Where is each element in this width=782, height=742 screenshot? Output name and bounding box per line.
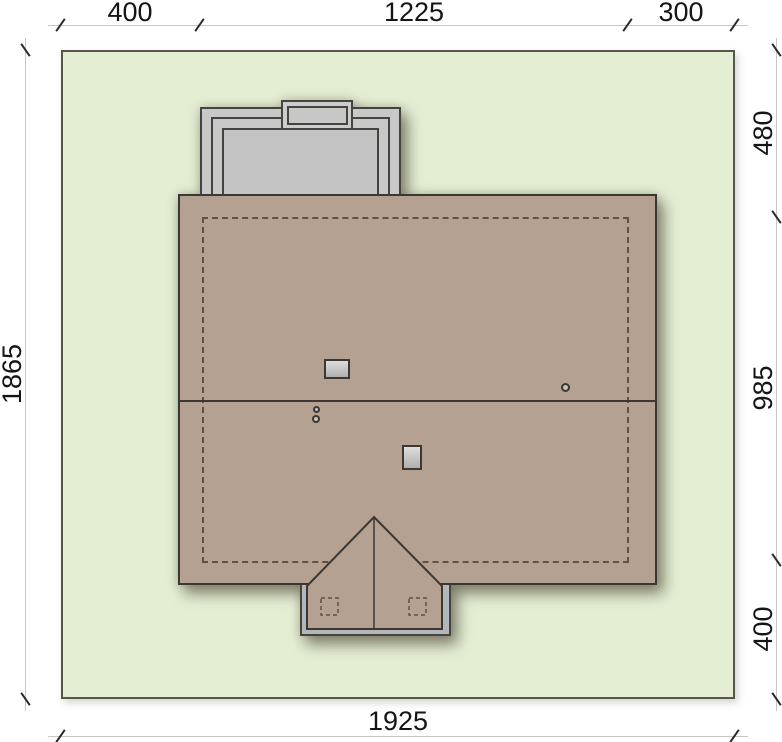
porch-gable-roof [295, 505, 455, 641]
roof-vent-circle [561, 383, 570, 392]
entry-terrace-step-inner [222, 128, 379, 197]
dimension-label-top-right: 300 [611, 0, 751, 26]
roof-vent-small-2 [312, 415, 320, 423]
dimension-label-right-top: 480 [749, 63, 777, 203]
dimension-label-bottom: 1925 [328, 707, 468, 735]
roof-chimney-right [402, 445, 422, 470]
site-plan: 400 1225 300 1925 1865 480 985 400 [0, 0, 782, 742]
house-group [0, 0, 782, 742]
roof-ridge-line [178, 400, 657, 402]
dimension-label-top-left: 400 [60, 0, 200, 26]
entry-canopy-block-inner [287, 106, 348, 125]
roof-chimney-left [324, 359, 350, 379]
dimension-label-left: 1865 [0, 304, 26, 444]
roof-vent-small-1 [313, 406, 320, 413]
dimension-label-top-center: 1225 [344, 0, 484, 26]
dimension-line-bottom [48, 736, 748, 737]
dimension-label-right-middle: 985 [749, 318, 777, 458]
dimension-label-right-bottom: 400 [749, 559, 777, 699]
